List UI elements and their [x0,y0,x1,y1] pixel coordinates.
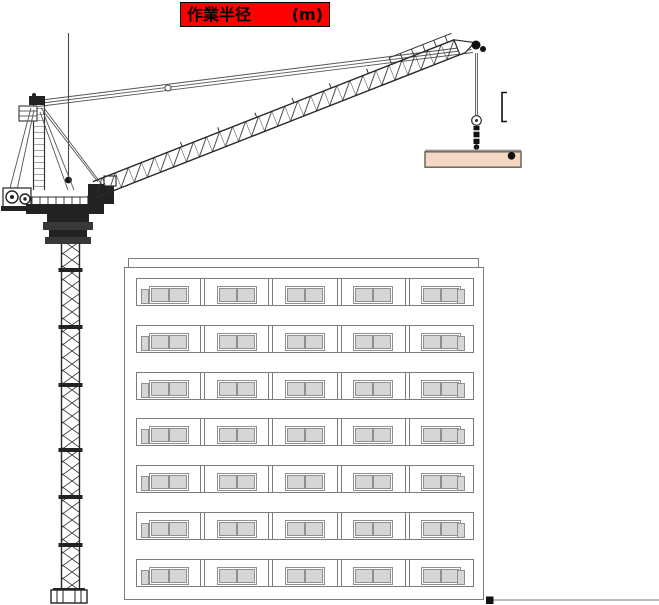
window-pane [423,569,441,583]
window-pane [151,335,169,349]
window-pane [305,569,323,583]
small-window [457,570,465,585]
window-pane [287,335,305,349]
window-unit [410,279,473,305]
window-unit [410,326,473,352]
window [285,426,325,444]
window-pane [237,382,255,396]
window-pane [169,382,187,396]
window-pane [169,335,187,349]
window [217,567,257,585]
window [353,473,393,491]
window-pane [169,569,187,583]
window-pane [287,288,305,302]
window-pane [355,288,373,302]
window-unit [273,373,336,399]
window-pane [237,569,255,583]
tower-base [51,588,87,603]
window-unit [342,419,405,445]
window [421,380,461,398]
floor-row [136,372,474,400]
window-pane [355,335,373,349]
window-pane [423,475,441,489]
window-unit [137,326,200,352]
window-pane [169,428,187,442]
window-pane [423,382,441,396]
window-pane [237,288,255,302]
window [149,380,189,398]
load-beam [425,150,521,167]
window [353,426,393,444]
window [285,473,325,491]
window-pane [219,569,237,583]
floor-row [136,278,474,306]
small-window [457,523,465,538]
window [149,567,189,585]
window-pane [423,288,441,302]
window-unit [273,560,336,586]
floor-row [136,418,474,446]
window-unit [273,419,336,445]
window-pane [237,335,255,349]
window-pane [287,428,305,442]
window-unit [205,513,268,539]
working-radius-unit: (m) [292,7,323,23]
window-pane [151,569,169,583]
window-pane [355,428,373,442]
window-pane [237,522,255,536]
window-pane [219,288,237,302]
crane-working-radius-diagram: 作業半径 (m) [0,0,659,605]
floor-row [136,512,474,540]
window-pane [287,475,305,489]
window-unit [410,419,473,445]
window-unit [410,513,473,539]
window-pane [151,428,169,442]
window-unit [410,373,473,399]
jib-tip [472,41,487,53]
small-window [457,429,465,444]
window-unit [342,513,405,539]
window-unit [137,373,200,399]
working-radius-label: 作業半径 (m) [180,2,330,27]
window [149,426,189,444]
window-pane [287,382,305,396]
window-unit [410,560,473,586]
window [353,286,393,304]
window-unit [205,326,268,352]
window [149,520,189,538]
window-pane [373,428,391,442]
corner-marker [486,597,494,605]
window-pane [305,382,323,396]
window [421,473,461,491]
window [421,520,461,538]
window-unit [342,466,405,492]
window-unit [342,373,405,399]
window-pane [219,382,237,396]
window-unit [273,513,336,539]
floor-row [136,559,474,587]
window-pane [169,288,187,302]
window-pane [169,522,187,536]
window-pane [169,475,187,489]
window-unit [342,560,405,586]
window-unit [205,373,268,399]
window-pane [237,475,255,489]
small-window [457,336,465,351]
hook-block [474,126,480,144]
small-window [457,476,465,491]
window [285,567,325,585]
window-unit [273,326,336,352]
window-unit [137,279,200,305]
window-unit [137,466,200,492]
window-pane [219,522,237,536]
window-pane [151,522,169,536]
floor-row [136,465,474,493]
window-unit [205,279,268,305]
window-pane [355,522,373,536]
window-pane [219,428,237,442]
window-pane [373,569,391,583]
window-unit [273,279,336,305]
window [217,426,257,444]
small-window [457,289,465,304]
window-pane [287,522,305,536]
window [421,286,461,304]
hook-and-cable [472,53,482,151]
window [149,286,189,304]
ground-line [486,597,659,605]
window [149,333,189,351]
window [149,473,189,491]
window-pane [151,382,169,396]
window-pane [305,428,323,442]
window-pane [423,335,441,349]
dimension-bracket [502,93,507,122]
window-pane [423,522,441,536]
window [217,473,257,491]
window-pane [355,569,373,583]
window-pane [355,382,373,396]
window [285,333,325,351]
building-elevation [124,267,484,600]
window [285,286,325,304]
window-pane [305,288,323,302]
window [421,567,461,585]
window-pane [305,522,323,536]
window-pane [373,382,391,396]
window-pane [305,335,323,349]
window [353,567,393,585]
window-pane [355,475,373,489]
pendant-ropes [38,47,473,107]
window [285,520,325,538]
window-pane [287,569,305,583]
window-unit [137,513,200,539]
window [285,380,325,398]
window-pane [373,475,391,489]
window [217,333,257,351]
window [217,520,257,538]
window-unit [205,560,268,586]
window-pane [423,428,441,442]
luffing-jib [87,27,477,198]
window [217,380,257,398]
window-pane [237,428,255,442]
window [421,333,461,351]
window [353,380,393,398]
window-pane [219,475,237,489]
window-pane [373,335,391,349]
working-radius-title: 作業半径 [187,7,251,23]
window-unit [137,560,200,586]
window-unit [137,419,200,445]
window [353,333,393,351]
window-pane [373,288,391,302]
window-unit [342,326,405,352]
window-pane [151,475,169,489]
floor-row [136,325,474,353]
window-unit [205,466,268,492]
window-unit [342,279,405,305]
beam-marker-dot [508,152,516,160]
window-pane [151,288,169,302]
window [353,520,393,538]
window-pane [305,475,323,489]
small-window [457,383,465,398]
window-pane [219,335,237,349]
window-unit [273,466,336,492]
window [421,426,461,444]
window-unit [410,466,473,492]
tower-hoist-rope [65,33,72,183]
window-unit [205,419,268,445]
tower-top-mast [10,93,103,190]
window-pane [373,522,391,536]
tower-mast [51,243,87,603]
window [217,286,257,304]
